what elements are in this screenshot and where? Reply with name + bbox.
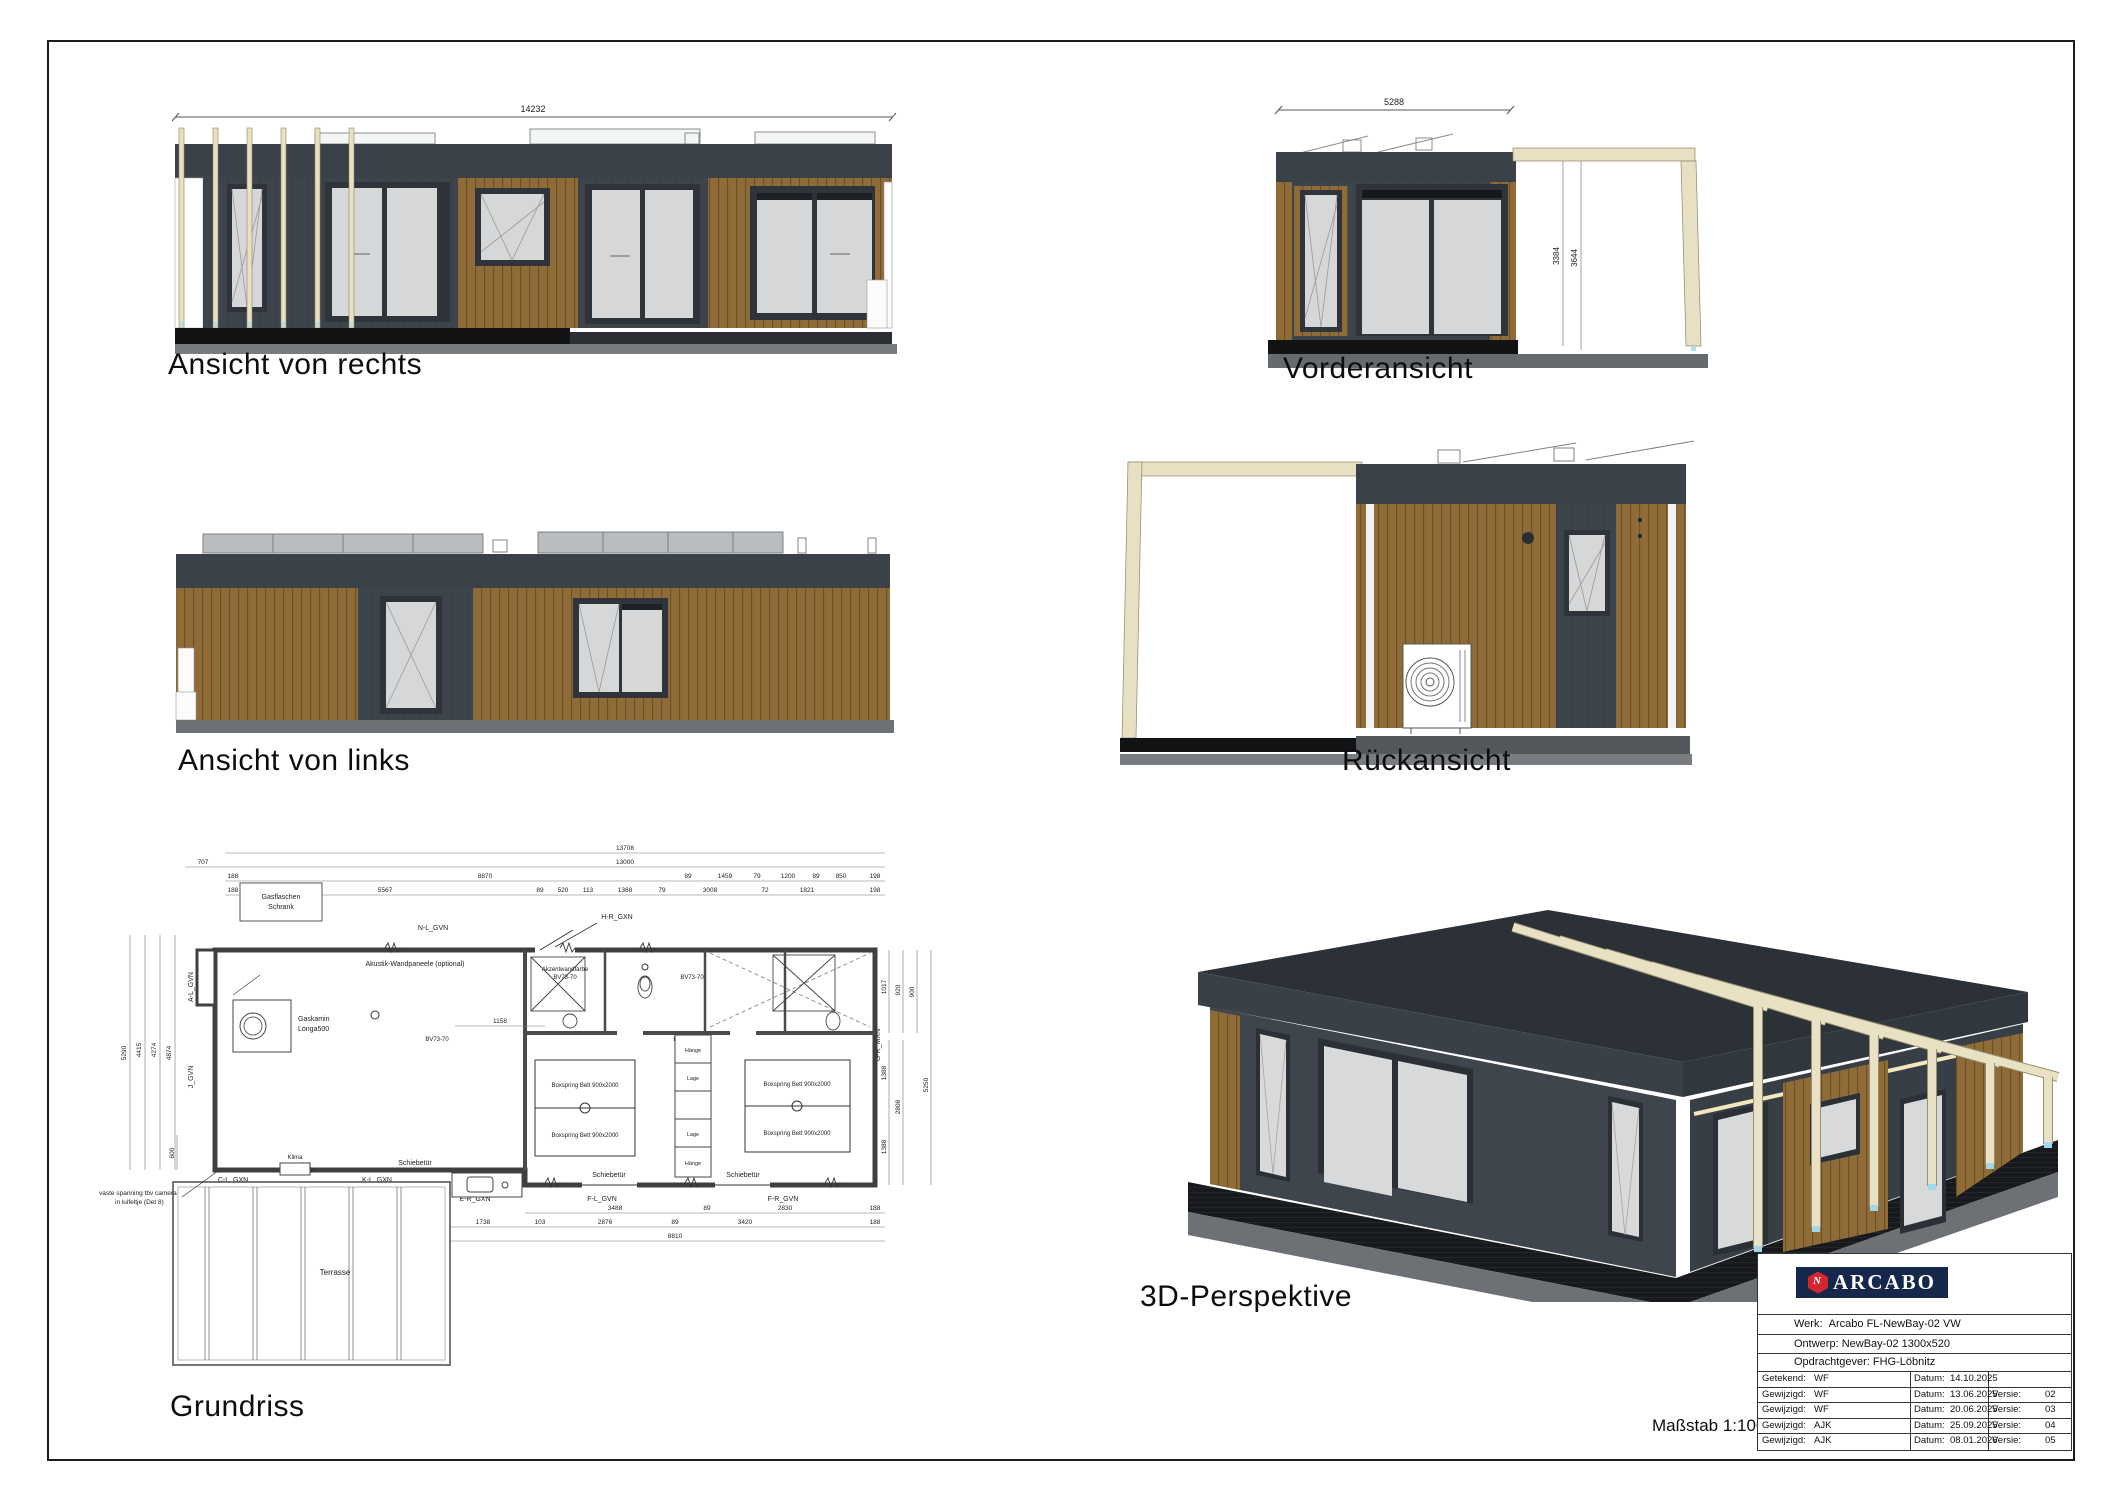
base-plinth xyxy=(176,720,894,733)
svg-text:72: 72 xyxy=(761,887,769,894)
svg-text:Gaskamin: Gaskamin xyxy=(298,1016,330,1023)
client-row: Opdrachtgever: FHG-Löbnitz xyxy=(1794,1356,1935,1368)
dim-height-1: 3384 xyxy=(1552,247,1561,265)
svg-text:Schiebetür: Schiebetür xyxy=(398,1160,432,1167)
svg-text:Boxspring Bett 900x2000: Boxspring Bett 900x2000 xyxy=(551,1083,619,1089)
svg-text:vaste spanning tbv camera: vaste spanning tbv camera xyxy=(99,1190,177,1197)
svg-text:79: 79 xyxy=(753,873,761,880)
svg-text:Schiebetür: Schiebetür xyxy=(726,1172,760,1179)
window-section xyxy=(1556,504,1616,728)
roof-equipment xyxy=(1296,134,1453,154)
elevation-right-view: 14232 xyxy=(115,92,915,392)
svg-text:8810: 8810 xyxy=(668,1233,683,1240)
gas-cabinet: Gasflaschen Schrank xyxy=(240,883,322,921)
svg-text:Akzentwandfarbe: Akzentwandfarbe xyxy=(542,967,589,973)
heat-pump-unit xyxy=(1403,644,1471,734)
svg-text:3008: 3008 xyxy=(703,887,718,894)
svg-text:520: 520 xyxy=(558,887,569,894)
elevation-left-view xyxy=(148,518,918,758)
terrace: Terrasse xyxy=(173,1182,450,1365)
svg-text:1388: 1388 xyxy=(881,1139,888,1154)
revision-row: Gewijzigd:WF Datum:13.06.2025 Versie:02 xyxy=(1758,1387,2071,1403)
corner-trim-right xyxy=(1668,504,1676,728)
svg-text:2808: 2808 xyxy=(895,1099,902,1114)
svg-text:4415: 4415 xyxy=(136,1042,143,1057)
svg-text:1017: 1017 xyxy=(881,979,888,994)
svg-text:in luifeltje (Det 8): in luifeltje (Det 8) xyxy=(115,1199,164,1206)
svg-text:BV73-70: BV73-70 xyxy=(425,1037,449,1043)
svg-text:A-L_GVN: A-L_GVN xyxy=(188,972,195,1002)
svg-text:BV73-70: BV73-70 xyxy=(553,975,577,981)
svg-text:Boxspring Bett 900x2000: Boxspring Bett 900x2000 xyxy=(763,1131,831,1137)
svg-text:H-R_GXN: H-R_GXN xyxy=(601,914,633,921)
svg-text:5567: 5567 xyxy=(378,887,393,894)
svg-text:4274: 4274 xyxy=(151,1042,158,1057)
svg-text:188: 188 xyxy=(228,887,239,894)
dim-height-2: 3644 xyxy=(1570,249,1579,267)
dimension-line: 5288 xyxy=(1275,97,1514,114)
roof-solar-panels xyxy=(315,129,875,144)
roof-fascia xyxy=(1356,464,1686,504)
svg-text:Boxspring Bett 900x2000: Boxspring Bett 900x2000 xyxy=(551,1133,619,1139)
svg-text:J_GVN: J_GVN xyxy=(188,1066,195,1089)
svg-text:Boxspring Bett 900x2000: Boxspring Bett 900x2000 xyxy=(763,1082,831,1088)
drawing-sheet: 14232 xyxy=(0,0,2117,1497)
svg-text:2830: 2830 xyxy=(778,1205,793,1212)
sliding-door xyxy=(1356,184,1508,336)
svg-text:Hänge: Hänge xyxy=(685,1161,701,1167)
title-elevation-left: Ansicht von links xyxy=(178,744,410,778)
terrace-label: Terrasse xyxy=(320,1268,351,1277)
svg-text:850: 850 xyxy=(836,873,847,880)
ontwerp-row: Ontwerp: NewBay-02 1300x520 xyxy=(1794,1338,1950,1350)
bedroom-left-beds: Boxspring Bett 900x2000 Boxspring Bett 9… xyxy=(535,1060,635,1156)
wood-wall xyxy=(176,588,890,720)
revision-row: Getekend:WF Datum:14.10.2025 xyxy=(1758,1371,2071,1387)
svg-text:5250: 5250 xyxy=(923,1077,930,1092)
scale-label: Maßstab 1:100 xyxy=(1652,1416,1765,1436)
svg-text:707: 707 xyxy=(198,859,209,866)
brand-name: ARCABO xyxy=(1833,1270,1936,1295)
svg-text:5290: 5290 xyxy=(121,1045,128,1060)
svg-text:89: 89 xyxy=(703,1205,711,1212)
plan-dims-bottom: 3488 89 2830 188 1738 103 2876 89 3420 1… xyxy=(445,1205,885,1241)
wardrobe-column: Hänge Lage Lage Hänge xyxy=(675,1035,711,1177)
wood-trim-left xyxy=(1276,182,1292,340)
werk-row: Werk: Arcabo FL-NewBay-02 VW xyxy=(1794,1318,1961,1330)
svg-text:F-L_GVN: F-L_GVN xyxy=(587,1196,617,1203)
svg-text:198: 198 xyxy=(870,887,881,894)
roof-solar-panels xyxy=(203,532,876,553)
title-elevation-right: Ansicht von rechts xyxy=(168,348,422,382)
svg-text:1368: 1368 xyxy=(618,887,633,894)
revision-row: Gewijzigd:AJK Datum:08.01.2026 Versie:05 xyxy=(1758,1433,2071,1449)
perspective-3d-view xyxy=(1128,852,2088,1302)
svg-text:188: 188 xyxy=(228,873,239,880)
door-glass-middle xyxy=(585,184,700,324)
bedroom-right-beds: Boxspring Bett 900x2000 Boxspring Bett 9… xyxy=(745,1060,850,1152)
svg-text:1388: 1388 xyxy=(881,1065,888,1080)
svg-text:900: 900 xyxy=(909,986,916,997)
svg-text:920: 920 xyxy=(895,984,902,995)
svg-text:1200: 1200 xyxy=(781,873,796,880)
svg-text:1821: 1821 xyxy=(800,887,815,894)
dim-overall-width: 14232 xyxy=(520,104,545,114)
title-block: ARCABO Werk: Arcabo FL-NewBay-02 VW Ontw… xyxy=(1757,1253,2072,1451)
svg-text:3420: 3420 xyxy=(738,1219,753,1226)
svg-text:89: 89 xyxy=(684,873,692,880)
svg-text:103: 103 xyxy=(535,1219,546,1226)
entry-door-section xyxy=(358,588,473,720)
svg-text:BV73-70: BV73-70 xyxy=(680,975,704,981)
svg-text:3488: 3488 xyxy=(608,1205,623,1212)
svg-text:13000: 13000 xyxy=(616,859,634,866)
wall-niche xyxy=(197,950,215,1005)
svg-text:Schiebetür: Schiebetür xyxy=(592,1172,626,1179)
svg-text:8870: 8870 xyxy=(478,873,493,880)
svg-text:89: 89 xyxy=(812,873,820,880)
title-elevation-front: Vorderansicht xyxy=(1283,352,1473,386)
dim-width: 5288 xyxy=(1384,97,1404,107)
svg-text:1158: 1158 xyxy=(493,1018,507,1025)
svg-text:Schrank: Schrank xyxy=(268,904,294,911)
svg-text:198: 198 xyxy=(870,873,881,880)
kitchen-block xyxy=(452,1173,522,1197)
svg-text:Lage: Lage xyxy=(687,1076,699,1082)
window xyxy=(573,598,668,698)
svg-text:1738: 1738 xyxy=(476,1219,491,1226)
svg-text:Hänge: Hänge xyxy=(685,1048,701,1054)
pergola-frame xyxy=(1122,462,1362,743)
pergola-beam xyxy=(1513,148,1701,351)
title-perspective: 3D-Perspektive xyxy=(1140,1280,1352,1314)
svg-text:600: 600 xyxy=(169,1147,176,1158)
svg-text:2876: 2876 xyxy=(598,1219,613,1226)
plan-dims-right: 1017 920 900 1388 2808 1388 5250 G-R_MXN xyxy=(875,950,931,1185)
revision-row: Gewijzigd:AJK Datum:25.09.2025 Versie:04 xyxy=(1758,1418,2071,1434)
svg-text:188: 188 xyxy=(870,1219,881,1226)
window-small xyxy=(475,188,550,266)
title-floor-plan: Grundriss xyxy=(170,1390,305,1424)
roof-fascia xyxy=(176,554,890,588)
wall-vent xyxy=(1522,532,1534,544)
arcabo-hexagon-icon xyxy=(1808,1272,1828,1294)
corner-trim-left xyxy=(1366,504,1374,728)
door-glass-left xyxy=(325,182,450,322)
roof-fascia xyxy=(1276,152,1516,182)
svg-text:89: 89 xyxy=(671,1219,679,1226)
floor-plan-view: 13708 707 13000 188 8870 89 1459 79 1200… xyxy=(85,835,975,1410)
revision-row: Gewijzigd:WF Datum:20.06.2025 Versie:03 xyxy=(1758,1402,2071,1418)
svg-text:188: 188 xyxy=(870,1205,881,1212)
svg-text:Klima: Klima xyxy=(287,1155,303,1161)
acoustic-panels-label: Akustik-Wandpaneele (optional) xyxy=(366,961,465,968)
svg-text:Lage: Lage xyxy=(687,1132,699,1138)
dimension-line: 14232 xyxy=(172,104,896,121)
svg-text:1459: 1459 xyxy=(718,873,733,880)
title-elevation-back: Rückansicht xyxy=(1342,744,1511,778)
svg-text:89: 89 xyxy=(536,887,544,894)
elevation-back-view xyxy=(1108,438,1708,778)
height-dimensions: 3384 3644 xyxy=(1552,161,1581,350)
svg-text:13708: 13708 xyxy=(616,845,634,852)
downspout xyxy=(176,648,196,720)
svg-text:N-L_GVN: N-L_GVN xyxy=(418,925,448,932)
svg-text:113: 113 xyxy=(583,887,594,894)
svg-text:Gasflaschen: Gasflaschen xyxy=(262,894,301,901)
svg-text:F-R_GVN: F-R_GVN xyxy=(768,1196,799,1203)
svg-text:79: 79 xyxy=(658,887,666,894)
roof-solar-struts xyxy=(1438,441,1694,463)
window-narrow xyxy=(1294,186,1348,336)
svg-text:Longa500: Longa500 xyxy=(298,1026,329,1033)
svg-text:4874: 4874 xyxy=(166,1045,173,1060)
window-pair-right xyxy=(750,186,875,320)
arcabo-logo: ARCABO xyxy=(1796,1267,1948,1298)
